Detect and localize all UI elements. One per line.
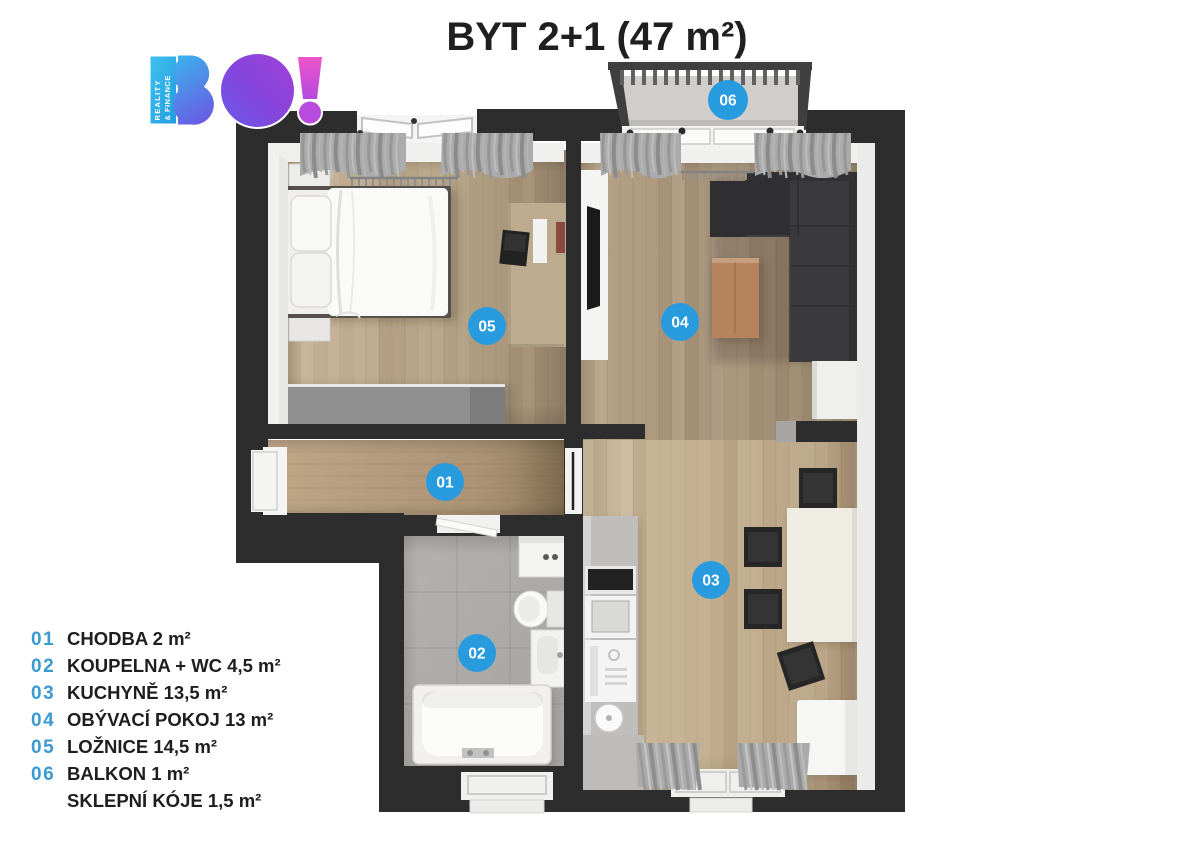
svg-text:BYT 2+1 (47 m²): BYT 2+1 (47 m²) <box>446 15 747 59</box>
svg-text:02: 02 <box>468 646 485 663</box>
svg-text:05: 05 <box>478 319 496 336</box>
svg-text:01: 01 <box>31 629 55 650</box>
svg-text:01: 01 <box>436 475 454 492</box>
svg-text:BALKON 1 m²: BALKON 1 m² <box>67 763 189 784</box>
svg-text:REALITY: REALITY <box>153 79 162 120</box>
svg-text:OBÝVACÍ POKOJ 13 m²: OBÝVACÍ POKOJ 13 m² <box>67 709 273 730</box>
svg-text:SKLEPNÍ KÓJE 1,5 m²: SKLEPNÍ KÓJE 1,5 m² <box>67 790 261 811</box>
svg-text:04: 04 <box>31 710 55 731</box>
svg-text:04: 04 <box>671 315 689 332</box>
svg-text:LOŽNICE 14,5 m²: LOŽNICE 14,5 m² <box>67 736 217 757</box>
svg-text:06: 06 <box>719 93 737 110</box>
svg-text:02: 02 <box>31 656 55 677</box>
svg-text:05: 05 <box>31 737 55 758</box>
svg-text:06: 06 <box>31 764 55 785</box>
svg-text:KOUPELNA + WC 4,5 m²: KOUPELNA + WC 4,5 m² <box>67 655 281 676</box>
svg-text:& FINANCE: & FINANCE <box>163 75 172 120</box>
svg-text:KUCHYNĚ 13,5 m²: KUCHYNĚ 13,5 m² <box>67 682 227 703</box>
svg-text:CHODBA 2 m²: CHODBA 2 m² <box>67 628 191 649</box>
svg-text:03: 03 <box>31 683 55 704</box>
svg-text:03: 03 <box>702 573 720 590</box>
